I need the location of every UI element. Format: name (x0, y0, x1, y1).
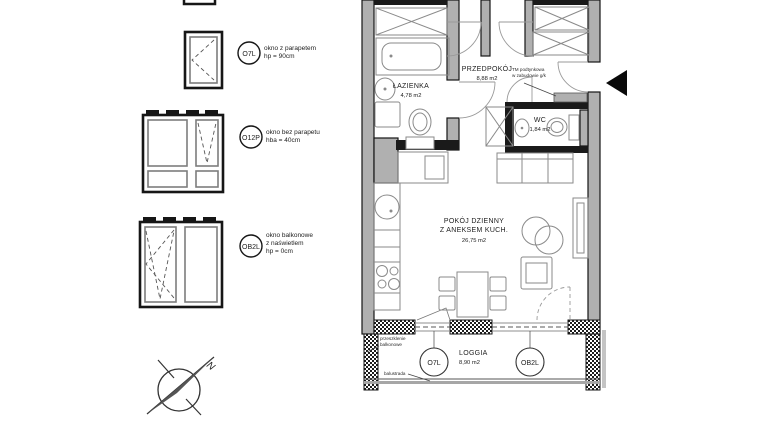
label-loggia-name: LOGGIA (459, 350, 488, 357)
wardrobe-bathroom (376, 8, 447, 35)
tv-cabinet (573, 198, 588, 258)
label-living-name-2: Z ANEKSEM KUCH. (440, 227, 508, 234)
note-tm-2: w zabudowie g/k (512, 73, 547, 78)
plan-tag-ob2l: OB2L (521, 360, 539, 367)
legend-desc-o7l-1: okno z parapetem (264, 45, 316, 52)
hall-fixtures (524, 7, 589, 102)
window-symbol-o12p (143, 110, 223, 192)
window-symbol-o7l (185, 32, 222, 88)
floor-plan-drawing: O7L okno z parapetem hp = 90cm O12P okno… (0, 0, 760, 428)
toilet-wc (547, 115, 579, 140)
label-loggia-area: 8,90 m2 (459, 360, 480, 366)
legend-desc-ob2l-2: z naświetlem (266, 240, 304, 247)
tm-panel (554, 93, 587, 102)
washing-machine (375, 102, 400, 127)
washbasin-wc (515, 119, 529, 137)
north-label: N (204, 360, 217, 374)
label-hall-name: PRZEDPOKÓJ (462, 64, 512, 73)
wardrobe-hall-upper (535, 7, 589, 30)
floor-plan-sheet: O7L okno z parapetem hp = 90cm O12P okno… (0, 0, 760, 428)
label-wc-area: 1,84 m2 (530, 127, 551, 133)
legend-item-ob2l: OB2L okno balkonowe z naświetlem hp = 0c… (140, 217, 313, 307)
window-o7l-glazing (415, 308, 450, 331)
coffee-table (522, 217, 563, 254)
label-hall-area: 8,88 m2 (477, 76, 498, 82)
balcony-door (537, 287, 570, 320)
label-bathroom-area: 4,78 m2 (401, 93, 422, 99)
kitchen-corner-counter (398, 152, 448, 183)
legend-code-ob2l: OB2L (242, 244, 260, 251)
tm-leader (524, 83, 556, 96)
label-living-name-1: POKÓJ DZIENNY (444, 216, 504, 225)
legend-code-o7l: O7L (242, 51, 255, 58)
entrance-arrow-icon (606, 70, 627, 96)
armchair (521, 257, 552, 289)
plan-tag-o7l: O7L (427, 360, 440, 367)
legend-code-o12p: O12P (242, 135, 260, 142)
note-balustrade: balustrada (384, 371, 406, 376)
legend-desc-o12p-2: hba = 40cm (266, 137, 300, 144)
window-ob2l-glazing (492, 323, 568, 331)
north-compass: N (147, 357, 217, 415)
living-furniture (439, 153, 588, 317)
note-glazing-2: balkonowe (380, 342, 402, 347)
entrance-door (558, 62, 588, 92)
legend-desc-o7l-2: hp = 90cm (264, 53, 295, 60)
legend-desc-ob2l-3: hp = 0cm (266, 248, 293, 255)
window-symbol-ob2l (140, 217, 222, 307)
wc-door (507, 77, 532, 102)
dining-set (439, 272, 506, 317)
bathtub (376, 38, 449, 75)
note-tm-1: TM podtynkowa (512, 67, 545, 72)
sofa (497, 153, 573, 183)
wardrobe-hall-lower (533, 32, 589, 55)
legend-desc-o12p-1: okno bez parapetu (266, 129, 320, 136)
label-bathroom-name: ŁAZIENKA (393, 83, 429, 90)
label-wc-name: WC (534, 117, 546, 124)
legend-item-o7l: O7L okno z parapetem hp = 90cm (185, 32, 316, 88)
legend-desc-ob2l-1: okno balkonowe (266, 232, 313, 239)
kitchen-sink (375, 195, 399, 219)
legend-item-o12p: O12P okno bez parapetu hba = 40cm (143, 110, 320, 192)
legend-symbol-cut (184, 0, 215, 4)
stove-burners (377, 266, 400, 290)
note-glazing-1: przeszklenie (380, 336, 406, 341)
label-living-area: 26,75 m2 (462, 238, 486, 244)
apartment-plan: O7L OB2L przeszklenie balkonowe balustra… (362, 0, 627, 390)
toilet-bathroom (406, 109, 434, 149)
kitchen-counter-run (374, 183, 400, 310)
legend: O7L okno z parapetem hp = 90cm O12P okno… (140, 0, 320, 307)
bathroom-fixtures (375, 8, 449, 149)
